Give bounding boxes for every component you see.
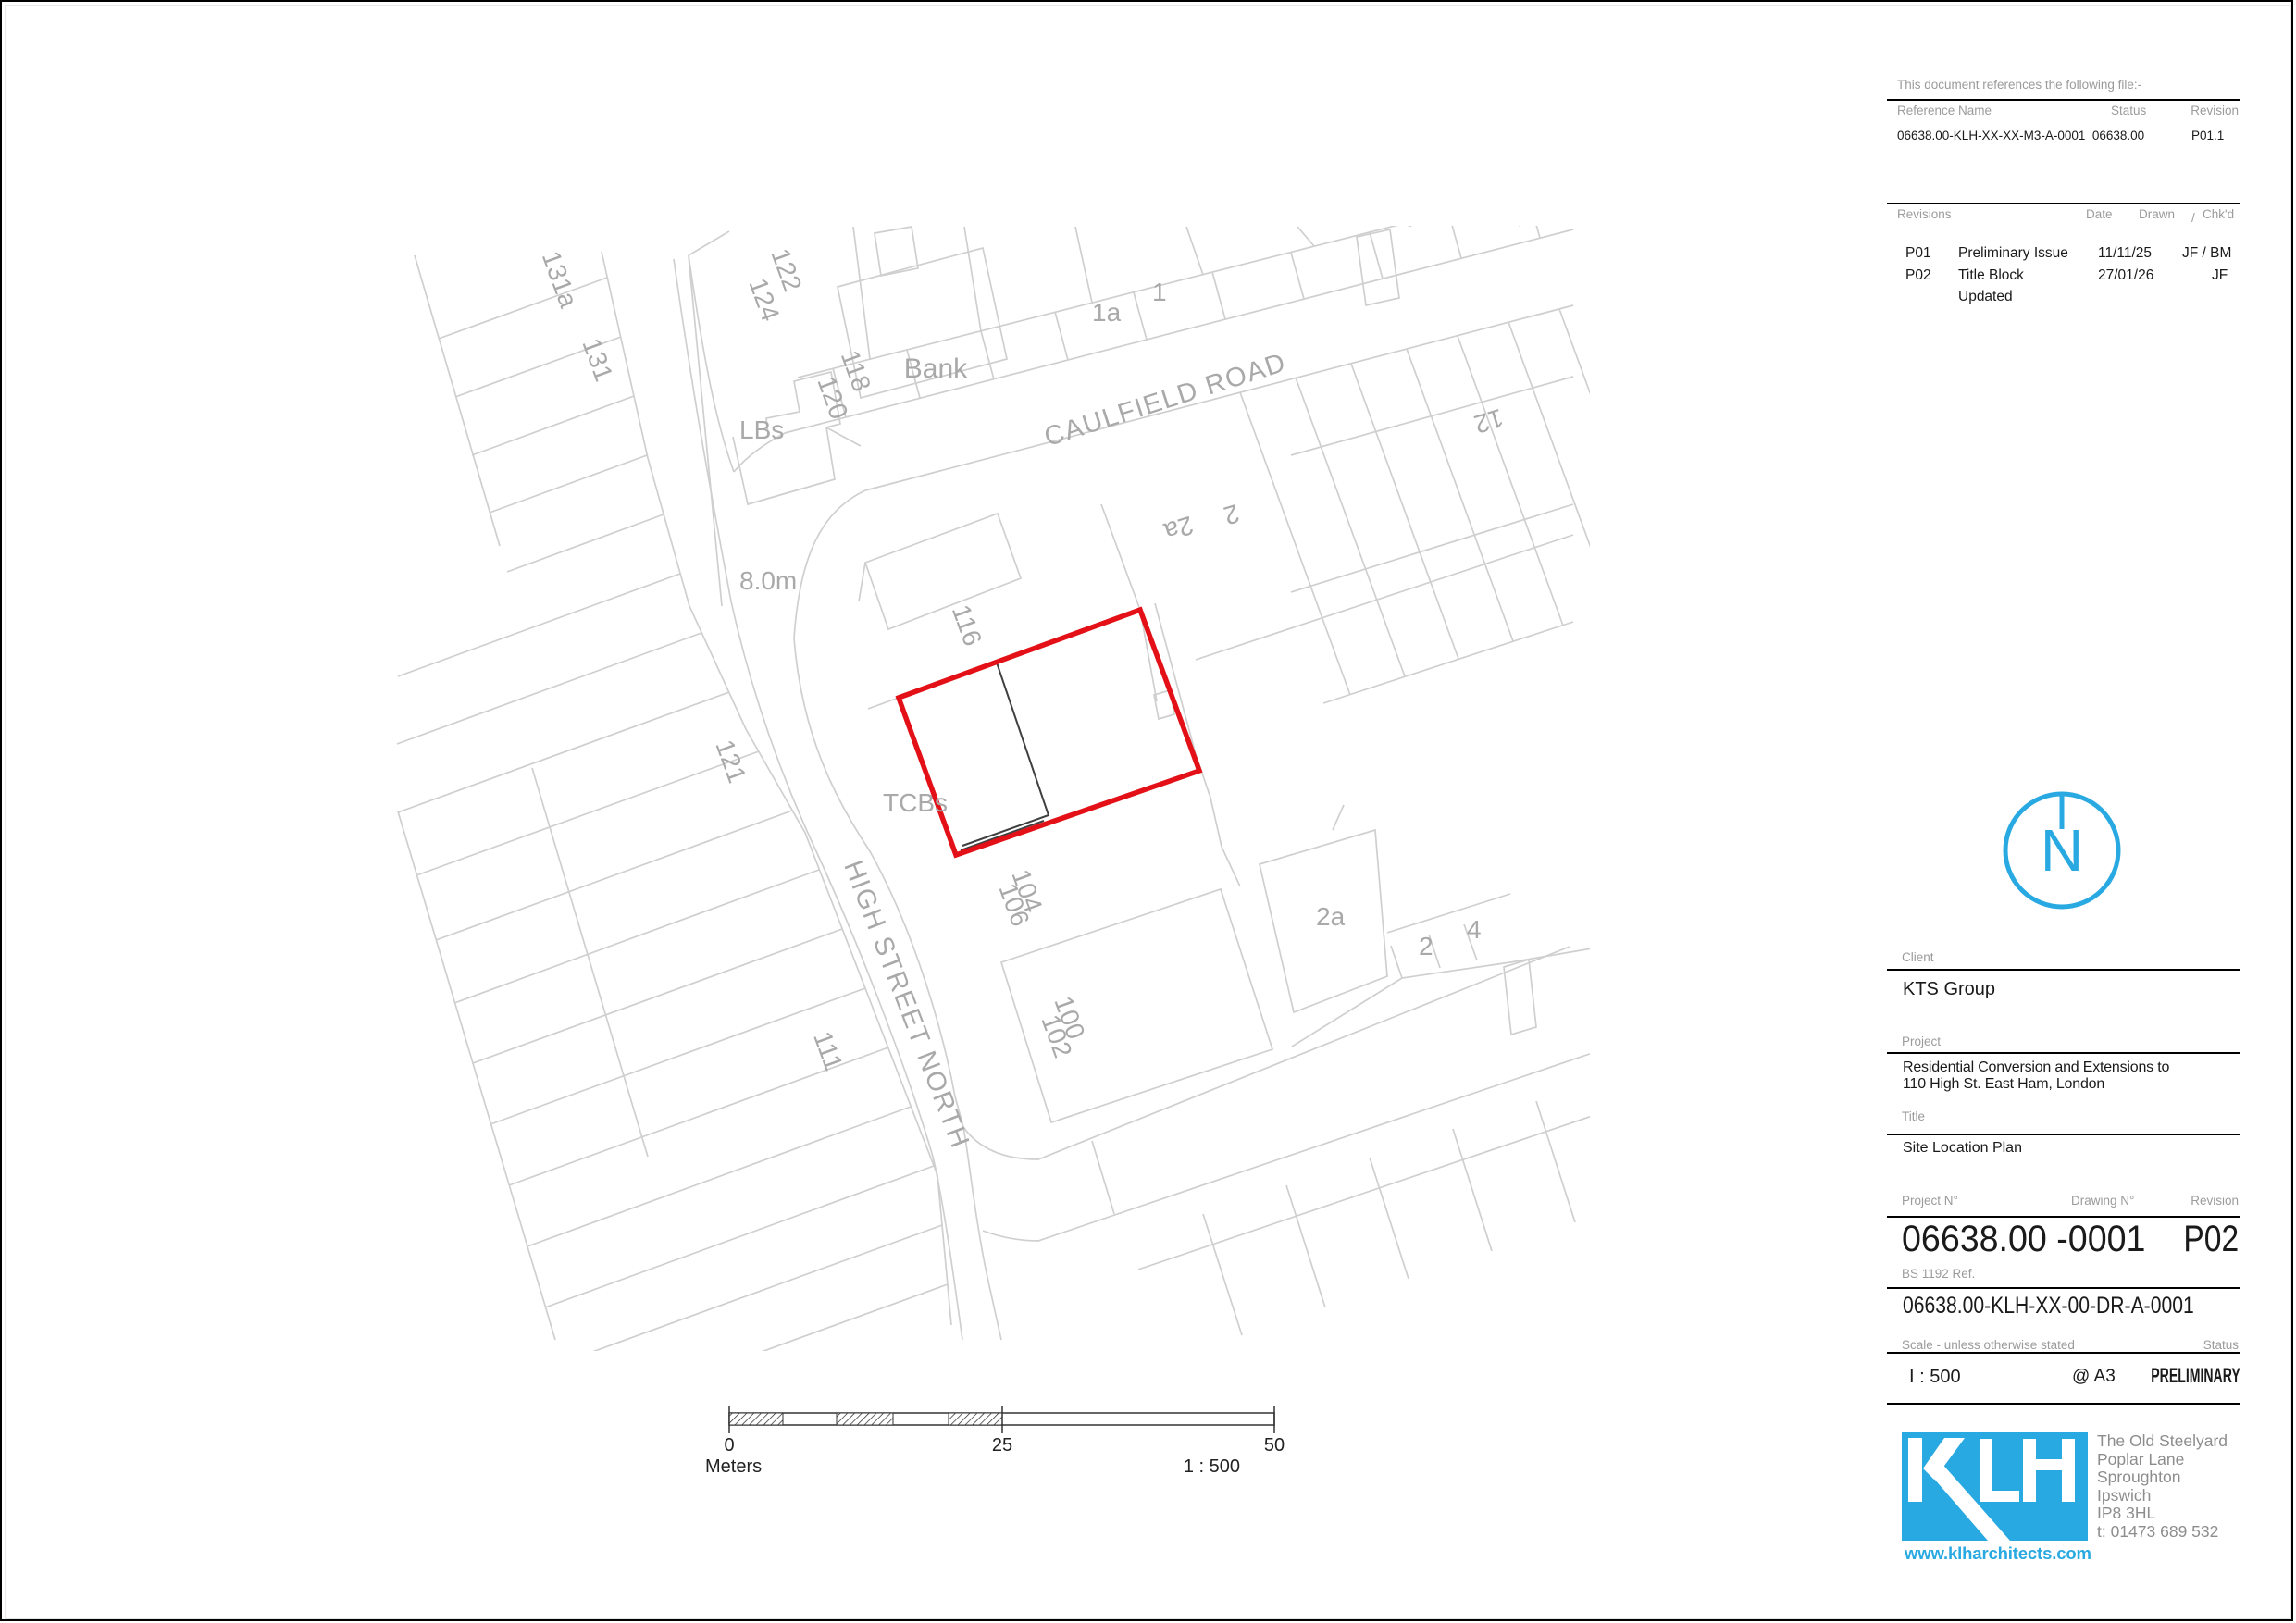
- svg-text:Meters: Meters: [705, 1456, 762, 1477]
- svg-text:CAULFIELD ROAD: CAULFIELD ROAD: [1041, 348, 1290, 452]
- svg-text:TCBs: TCBs: [883, 788, 948, 817]
- svg-text:131a: 131a: [537, 247, 584, 312]
- svg-text:121: 121: [710, 736, 751, 787]
- svg-text:1: 1: [1152, 278, 1167, 306]
- svg-text:0: 0: [724, 1435, 734, 1456]
- svg-text:111: 111: [808, 1027, 849, 1074]
- svg-text:LBs: LBs: [739, 415, 784, 444]
- svg-text:8.0m: 8.0m: [739, 566, 797, 595]
- svg-text:25: 25: [992, 1435, 1012, 1456]
- svg-text:2: 2: [1221, 499, 1243, 530]
- svg-text:1 : 500: 1 : 500: [1184, 1456, 1240, 1477]
- svg-text:N: N: [2041, 817, 2083, 884]
- svg-text:2: 2: [1419, 932, 1433, 960]
- svg-text:12: 12: [1471, 403, 1507, 440]
- svg-text:4: 4: [1467, 915, 1482, 944]
- svg-text:Bank: Bank: [904, 353, 968, 384]
- svg-text:131: 131: [577, 334, 618, 385]
- svg-text:2a: 2a: [1316, 902, 1346, 931]
- svg-text:116: 116: [947, 601, 987, 650]
- svg-text:1a: 1a: [1092, 298, 1122, 327]
- svg-text:2a: 2a: [1160, 511, 1197, 547]
- svg-text:50: 50: [1264, 1435, 1285, 1456]
